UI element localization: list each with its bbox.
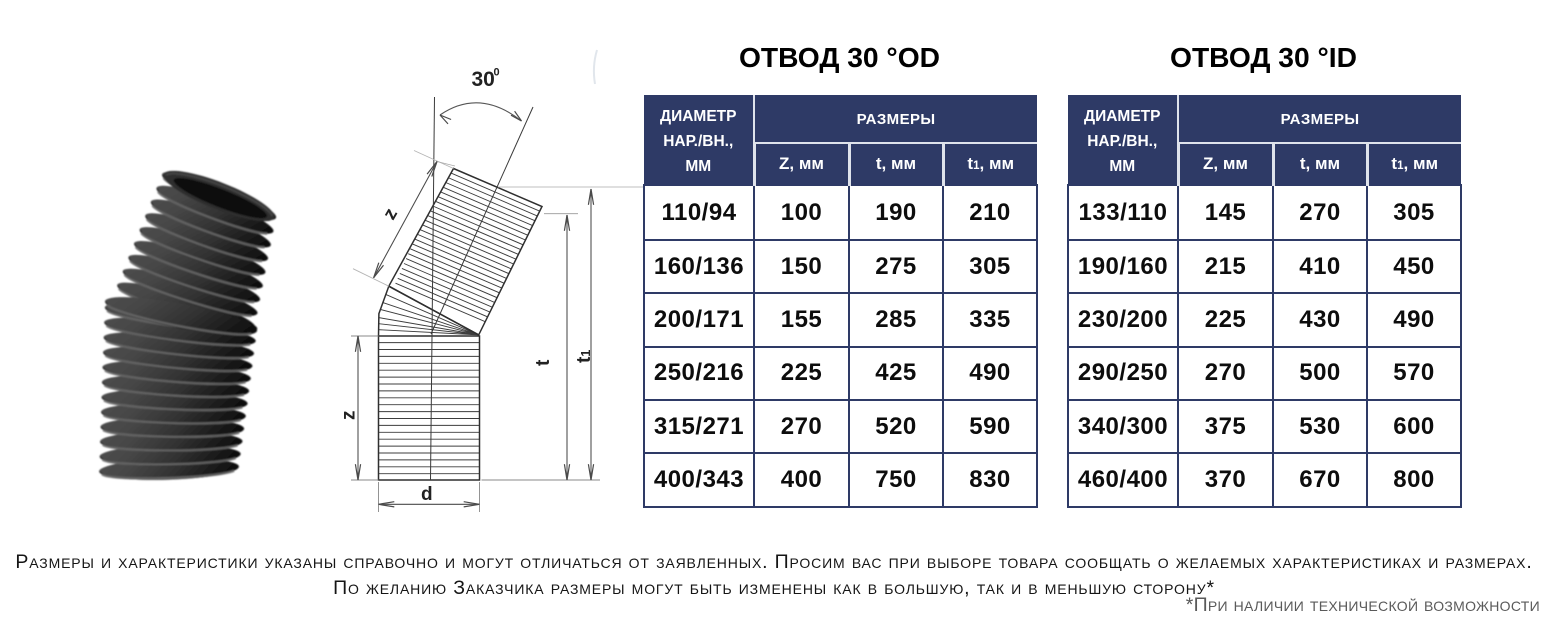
svg-text:30: 30 (472, 68, 495, 91)
svg-text:t1: t1 (574, 350, 595, 363)
svg-text:t: t (533, 359, 554, 366)
svg-text:d: d (421, 484, 433, 505)
svg-text:0: 0 (494, 67, 500, 79)
svg-text:z: z (339, 411, 360, 421)
svg-text:z: z (379, 205, 402, 224)
